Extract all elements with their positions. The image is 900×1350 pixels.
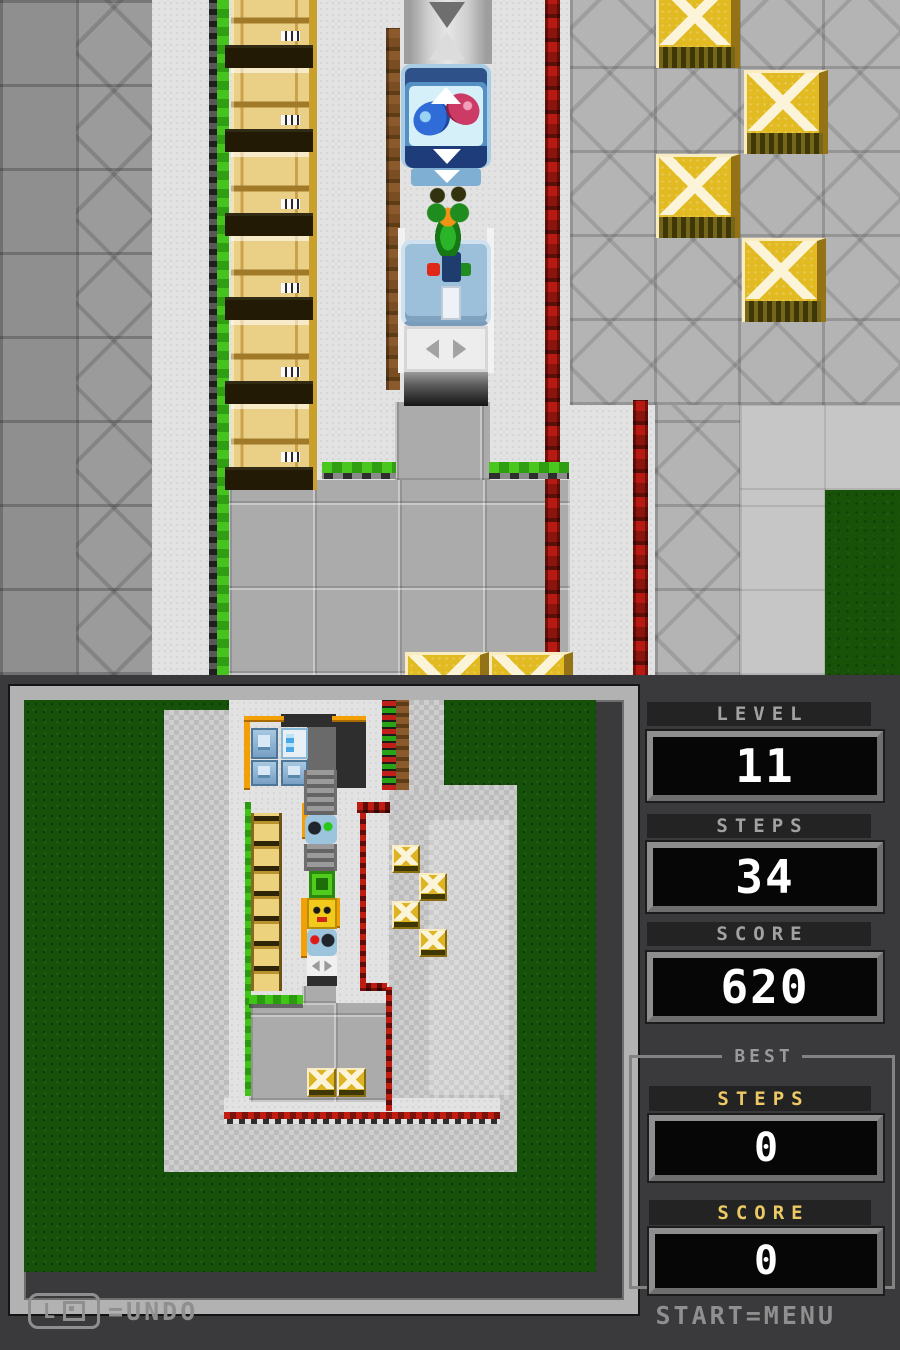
- green-wall: [217, 0, 229, 675]
- gold-crate: [489, 652, 573, 675]
- courtyard: [228, 480, 570, 675]
- minimap-player: [307, 898, 337, 929]
- steps-label: STEPS: [647, 814, 871, 838]
- wooden-crate-stack: [251, 813, 282, 991]
- green-wall: [322, 462, 396, 479]
- gold-crate: [419, 873, 447, 901]
- floor-check: [409, 700, 444, 790]
- conveyor: [304, 770, 337, 815]
- red-wall: [360, 812, 366, 984]
- gold-crate: [392, 845, 420, 873]
- score-label: SCORE: [647, 922, 871, 946]
- l-shoulder-button-icon: L: [28, 1293, 100, 1329]
- floor-plain: [740, 405, 900, 490]
- gold-crate: [392, 901, 420, 929]
- menu-hint: START=MENU: [655, 1297, 836, 1333]
- robot-machine: [305, 815, 337, 844]
- player-character: [424, 184, 472, 256]
- green-wall: [489, 462, 569, 479]
- fish-tank-machine: [281, 728, 308, 759]
- wooden-crate: [231, 236, 317, 320]
- best-score-label: SCORE: [649, 1200, 871, 1225]
- best-score-value: 0: [649, 1228, 883, 1294]
- wall-orange: [244, 716, 250, 790]
- best-steps-value: 0: [649, 1115, 883, 1181]
- red-wall: [224, 1112, 500, 1124]
- gold-crate: [742, 238, 826, 322]
- elevator-shaft: [404, 372, 488, 406]
- gold-crate: [744, 70, 828, 154]
- elevator-platform: [307, 956, 337, 976]
- green-wall: [249, 995, 303, 1004]
- steps-value: 34: [647, 842, 883, 912]
- floor-court: [302, 986, 336, 1005]
- machine: [251, 728, 278, 759]
- undo-label: =UNDO: [108, 1297, 198, 1326]
- machine: [251, 760, 278, 786]
- bottom-screen[interactable]: LEVEL 11 STEPS 34 SCORE 620 BEST STEPS 0…: [0, 675, 900, 1350]
- floor-plain: [740, 490, 825, 675]
- courtyard: [395, 402, 490, 482]
- wall-brown-vm: [396, 700, 409, 790]
- score-value: 620: [647, 952, 883, 1022]
- wooden-crate: [231, 68, 317, 152]
- gold-crate: [656, 0, 740, 68]
- tile-wall-left: [0, 0, 76, 675]
- gold-crate: [405, 652, 489, 675]
- red-wall: [386, 987, 392, 1111]
- elevator-platform: [404, 326, 488, 372]
- gold-crate: [307, 1068, 336, 1097]
- tile-wall-left: [76, 0, 152, 675]
- menu-label: START=MENU: [655, 1301, 836, 1330]
- wall-orange: [244, 716, 284, 722]
- conveyor: [304, 844, 337, 871]
- green-elevator: [309, 871, 335, 898]
- best-steps-label: STEPS: [649, 1086, 871, 1111]
- level-label: LEVEL: [647, 702, 871, 726]
- grass-patch: [825, 490, 900, 675]
- slot-white: [441, 286, 461, 320]
- wooden-crate: [231, 0, 317, 68]
- red-button: [427, 263, 440, 276]
- robot-machine: [307, 929, 337, 956]
- wooden-crate: [231, 152, 317, 236]
- target-wall: [382, 700, 396, 790]
- gold-crate: [656, 154, 740, 238]
- undo-hint: L =UNDO: [28, 1293, 198, 1329]
- gold-crate: [419, 929, 447, 957]
- wall-dark: [307, 976, 337, 986]
- minimap-frame[interactable]: [10, 686, 638, 1314]
- wooden-crate: [231, 404, 317, 490]
- l-button-label: L: [43, 1299, 58, 1323]
- game-screenshot: { "stats": { "level": {"label": "LEVEL",…: [0, 0, 900, 1350]
- gold-crate: [337, 1068, 366, 1097]
- box-icon: [63, 1301, 85, 1321]
- wooden-crate: [231, 320, 317, 404]
- tile-yard-right: [655, 405, 740, 675]
- top-screen-game-view: [0, 0, 900, 675]
- floor-light2: [429, 820, 509, 1095]
- red-wall: [633, 400, 648, 675]
- best-title: BEST: [722, 1046, 801, 1067]
- wall-dark: [336, 716, 366, 788]
- best-panel: BEST STEPS 0 SCORE 0: [629, 1046, 895, 1289]
- level-value: 11: [647, 731, 883, 801]
- wall-orange: [332, 716, 366, 722]
- slot-navy: [442, 252, 461, 282]
- red-wall: [360, 983, 387, 991]
- minimap-level-overview: [24, 700, 596, 1272]
- red-wall: [545, 0, 560, 652]
- wall-dark: [281, 714, 336, 727]
